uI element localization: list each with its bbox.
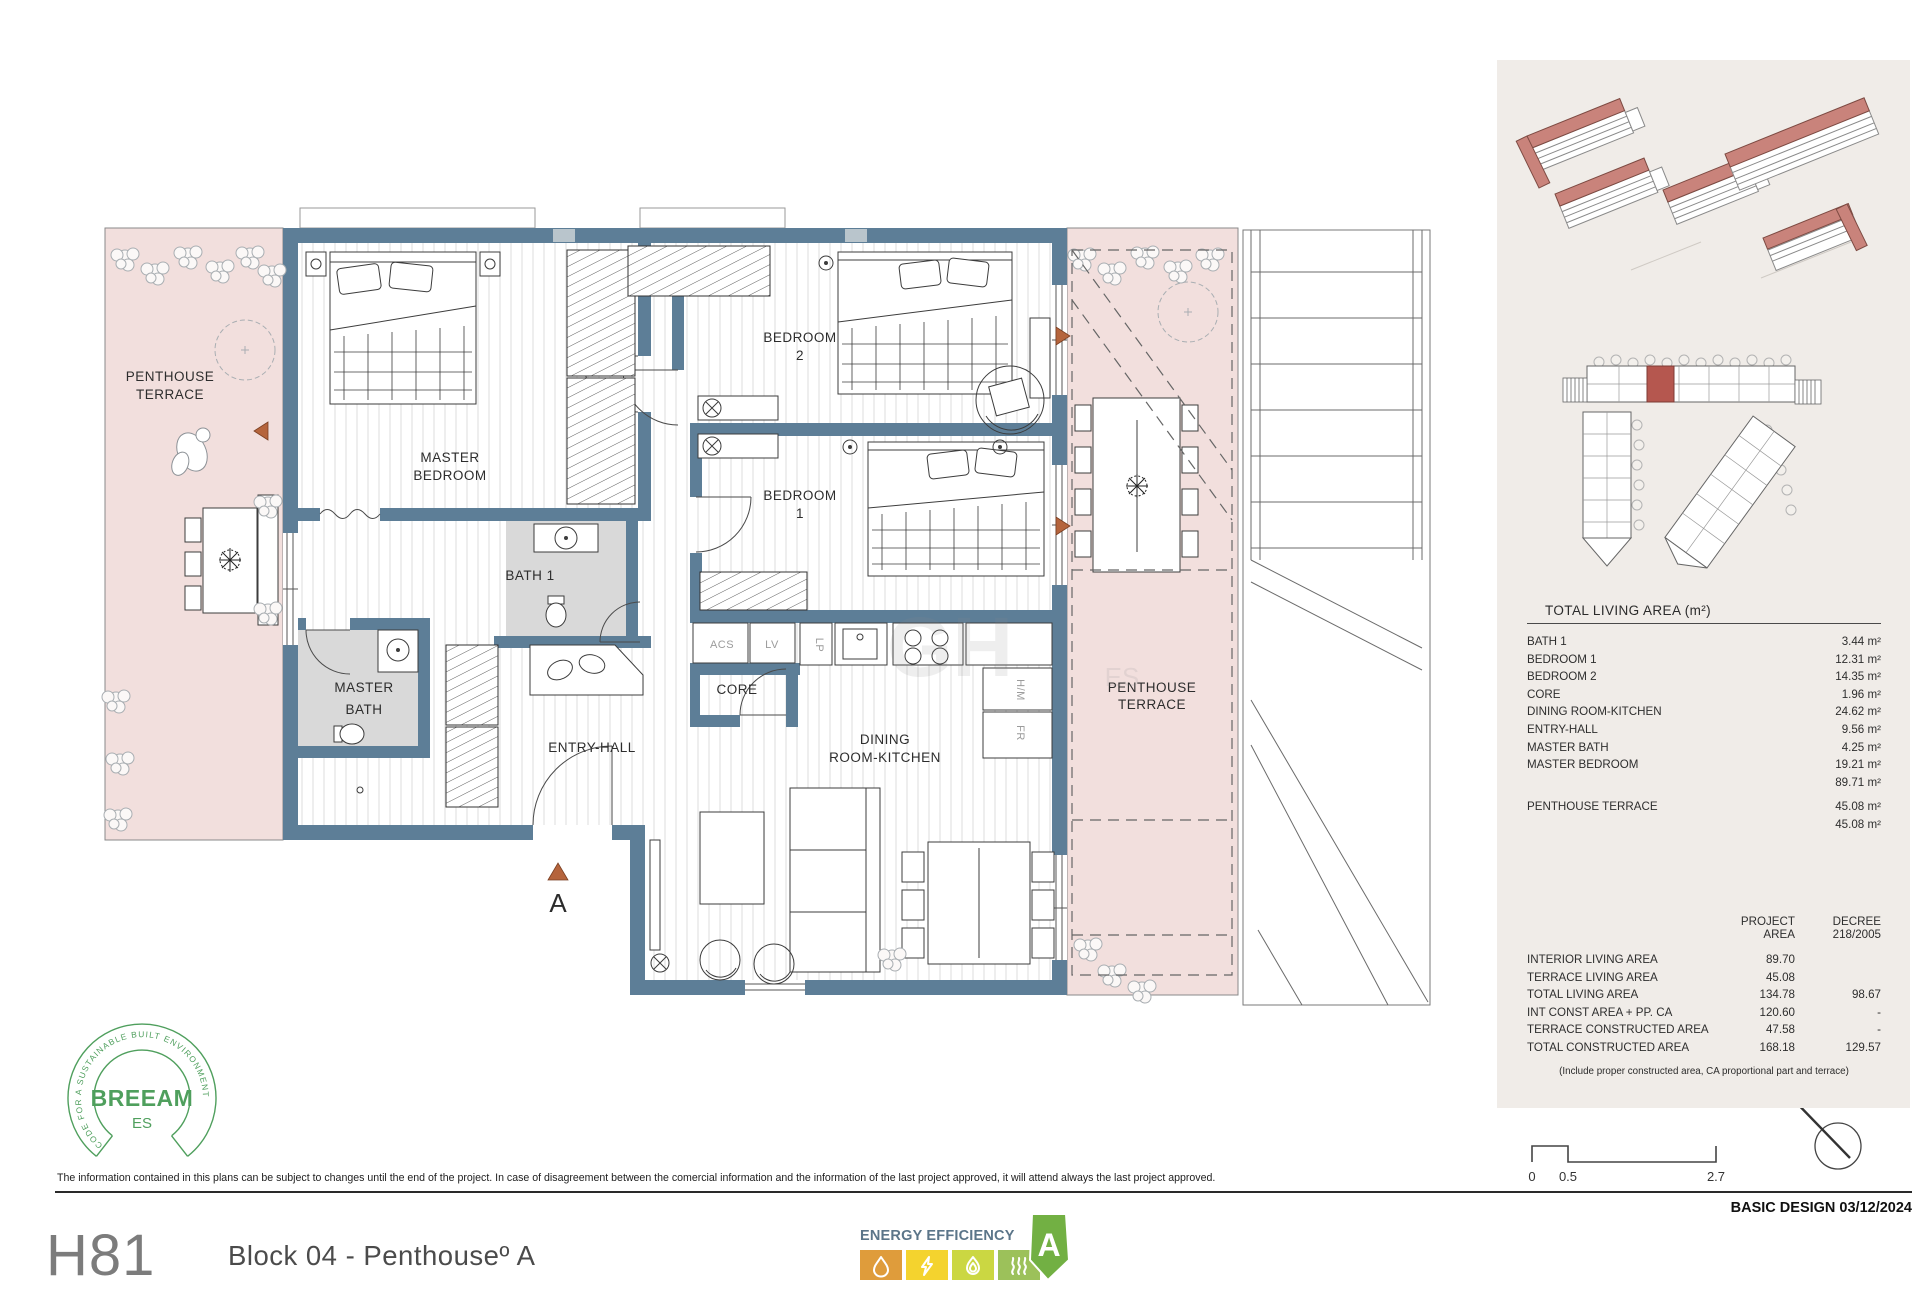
table-row: INT CONST AREA + PP. CA120.60- xyxy=(1527,1004,1881,1022)
summary-header: PROJECTAREA DECREE218/2005 xyxy=(1527,915,1881,941)
energy-badge: ENERGY EFFICIENCY A xyxy=(856,1214,1069,1280)
table-row: DINING ROOM-KITCHEN24.62 m² xyxy=(1527,703,1881,721)
terrace-right-floor xyxy=(1067,228,1238,995)
svg-text:2: 2 xyxy=(796,348,804,363)
table-row: ENTRY-HALL9.56 m² xyxy=(1527,721,1881,739)
info-panel: TOTAL LIVING AREA (m²) BATH 13.44 m² BED… xyxy=(1497,60,1910,1108)
label-lp: LP xyxy=(813,638,825,652)
table-row: PENTHOUSE TERRACE45.08 m² xyxy=(1527,798,1881,816)
summary-footnote: (Include proper constructed area, CA pro… xyxy=(1527,1066,1881,1077)
plan-code: H81 xyxy=(46,1222,155,1289)
label-acs: ACS xyxy=(710,639,734,651)
highlighted-unit xyxy=(1647,366,1674,402)
area-table-title: TOTAL LIVING AREA (m²) xyxy=(1527,603,1881,624)
table-row subtotal: 45.08 m² xyxy=(1527,816,1881,834)
svg-text:ES: ES xyxy=(1105,662,1140,692)
table-row: TERRACE LIVING AREA45.08 xyxy=(1527,969,1881,987)
external-stairs xyxy=(1243,230,1430,1005)
building-3d-view xyxy=(1511,70,1897,285)
table-row: BATH 13.44 m² xyxy=(1527,633,1881,651)
svg-text:1: 1 xyxy=(796,506,804,521)
table-row: BEDROOM 112.31 m² xyxy=(1527,651,1881,669)
entry-marker-a: A xyxy=(549,888,567,918)
energy-gas-cell xyxy=(952,1250,994,1280)
table-row: MASTER BATH4.25 m² xyxy=(1527,739,1881,757)
table-row: CORE1.96 m² xyxy=(1527,686,1881,704)
breeam-name: BREEAM xyxy=(91,1085,194,1111)
energy-title: ENERGY EFFICIENCY xyxy=(860,1228,1015,1244)
design-date-label: BASIC DESIGN 03/12/2024 xyxy=(1731,1200,1912,1216)
label-bedroom1: BEDROOM xyxy=(763,488,836,503)
breeam-logo: CODE FOR A SUSTAINABLE BUILT ENVIRONMENT… xyxy=(68,1024,216,1156)
label-bedroom2: BEDROOM xyxy=(763,330,836,345)
label-fr: FR xyxy=(1014,725,1026,741)
table-row: TOTAL CONSTRUCTED AREA168.18129.57 xyxy=(1527,1039,1881,1057)
divider-rule xyxy=(55,1191,1912,1193)
table-row: MASTER BEDROOM19.21 m² xyxy=(1527,756,1881,774)
disclaimer-text: The information contained in this plans … xyxy=(57,1172,1457,1184)
label-terrace-left: PENTHOUSE xyxy=(126,369,215,384)
breeam-region: ES xyxy=(132,1115,152,1132)
label-core: CORE xyxy=(716,682,757,697)
table-row: BEDROOM 214.35 m² xyxy=(1527,668,1881,686)
svg-text:GH: GH xyxy=(887,600,1013,694)
svg-text:2.7: 2.7 xyxy=(1707,1169,1725,1184)
label-master-bedroom: MASTER xyxy=(420,450,479,465)
svg-text:TERRACE: TERRACE xyxy=(1118,697,1186,712)
label-hm: H/M xyxy=(1014,679,1026,701)
table-row: TOTAL LIVING AREA134.7898.67 xyxy=(1527,986,1881,1004)
svg-text:0.5: 0.5 xyxy=(1559,1169,1577,1184)
label-dining: DINING xyxy=(860,732,910,747)
label-master-bath: MASTER xyxy=(334,680,393,695)
table-row subtotal: 89.71 m² xyxy=(1527,774,1881,792)
label-lv: LV xyxy=(765,639,779,651)
scale-bar: 0 0.5 2.7 xyxy=(1528,1146,1725,1184)
summary-table: PROJECTAREA DECREE218/2005 INTERIOR LIVI… xyxy=(1527,915,1881,1077)
svg-text:BEDROOM: BEDROOM xyxy=(413,468,486,483)
floorplan-sheet: { "footer": { "code": "H81", "block": "B… xyxy=(0,0,1920,1280)
site-key-plan xyxy=(1559,340,1844,580)
energy-rating: A xyxy=(1037,1227,1060,1263)
page-title: Block 04 - Penthouseº A xyxy=(228,1240,535,1272)
svg-text:BATH: BATH xyxy=(345,702,382,717)
table-row: INTERIOR LIVING AREA89.70 xyxy=(1527,951,1881,969)
svg-text:ROOM-KITCHEN: ROOM-KITCHEN xyxy=(829,750,941,765)
overhang-lines xyxy=(300,208,785,228)
energy-electric-cell xyxy=(906,1250,948,1280)
label-entry-hall: ENTRY-HALL xyxy=(548,740,636,755)
area-table: TOTAL LIVING AREA (m²) BATH 13.44 m² BED… xyxy=(1527,603,1881,834)
table-row: TERRACE CONSTRUCTED AREA47.58- xyxy=(1527,1021,1881,1039)
label-bath1: BATH 1 xyxy=(505,568,554,583)
svg-text:0: 0 xyxy=(1528,1169,1535,1184)
svg-text:TERRACE: TERRACE xyxy=(136,387,204,402)
